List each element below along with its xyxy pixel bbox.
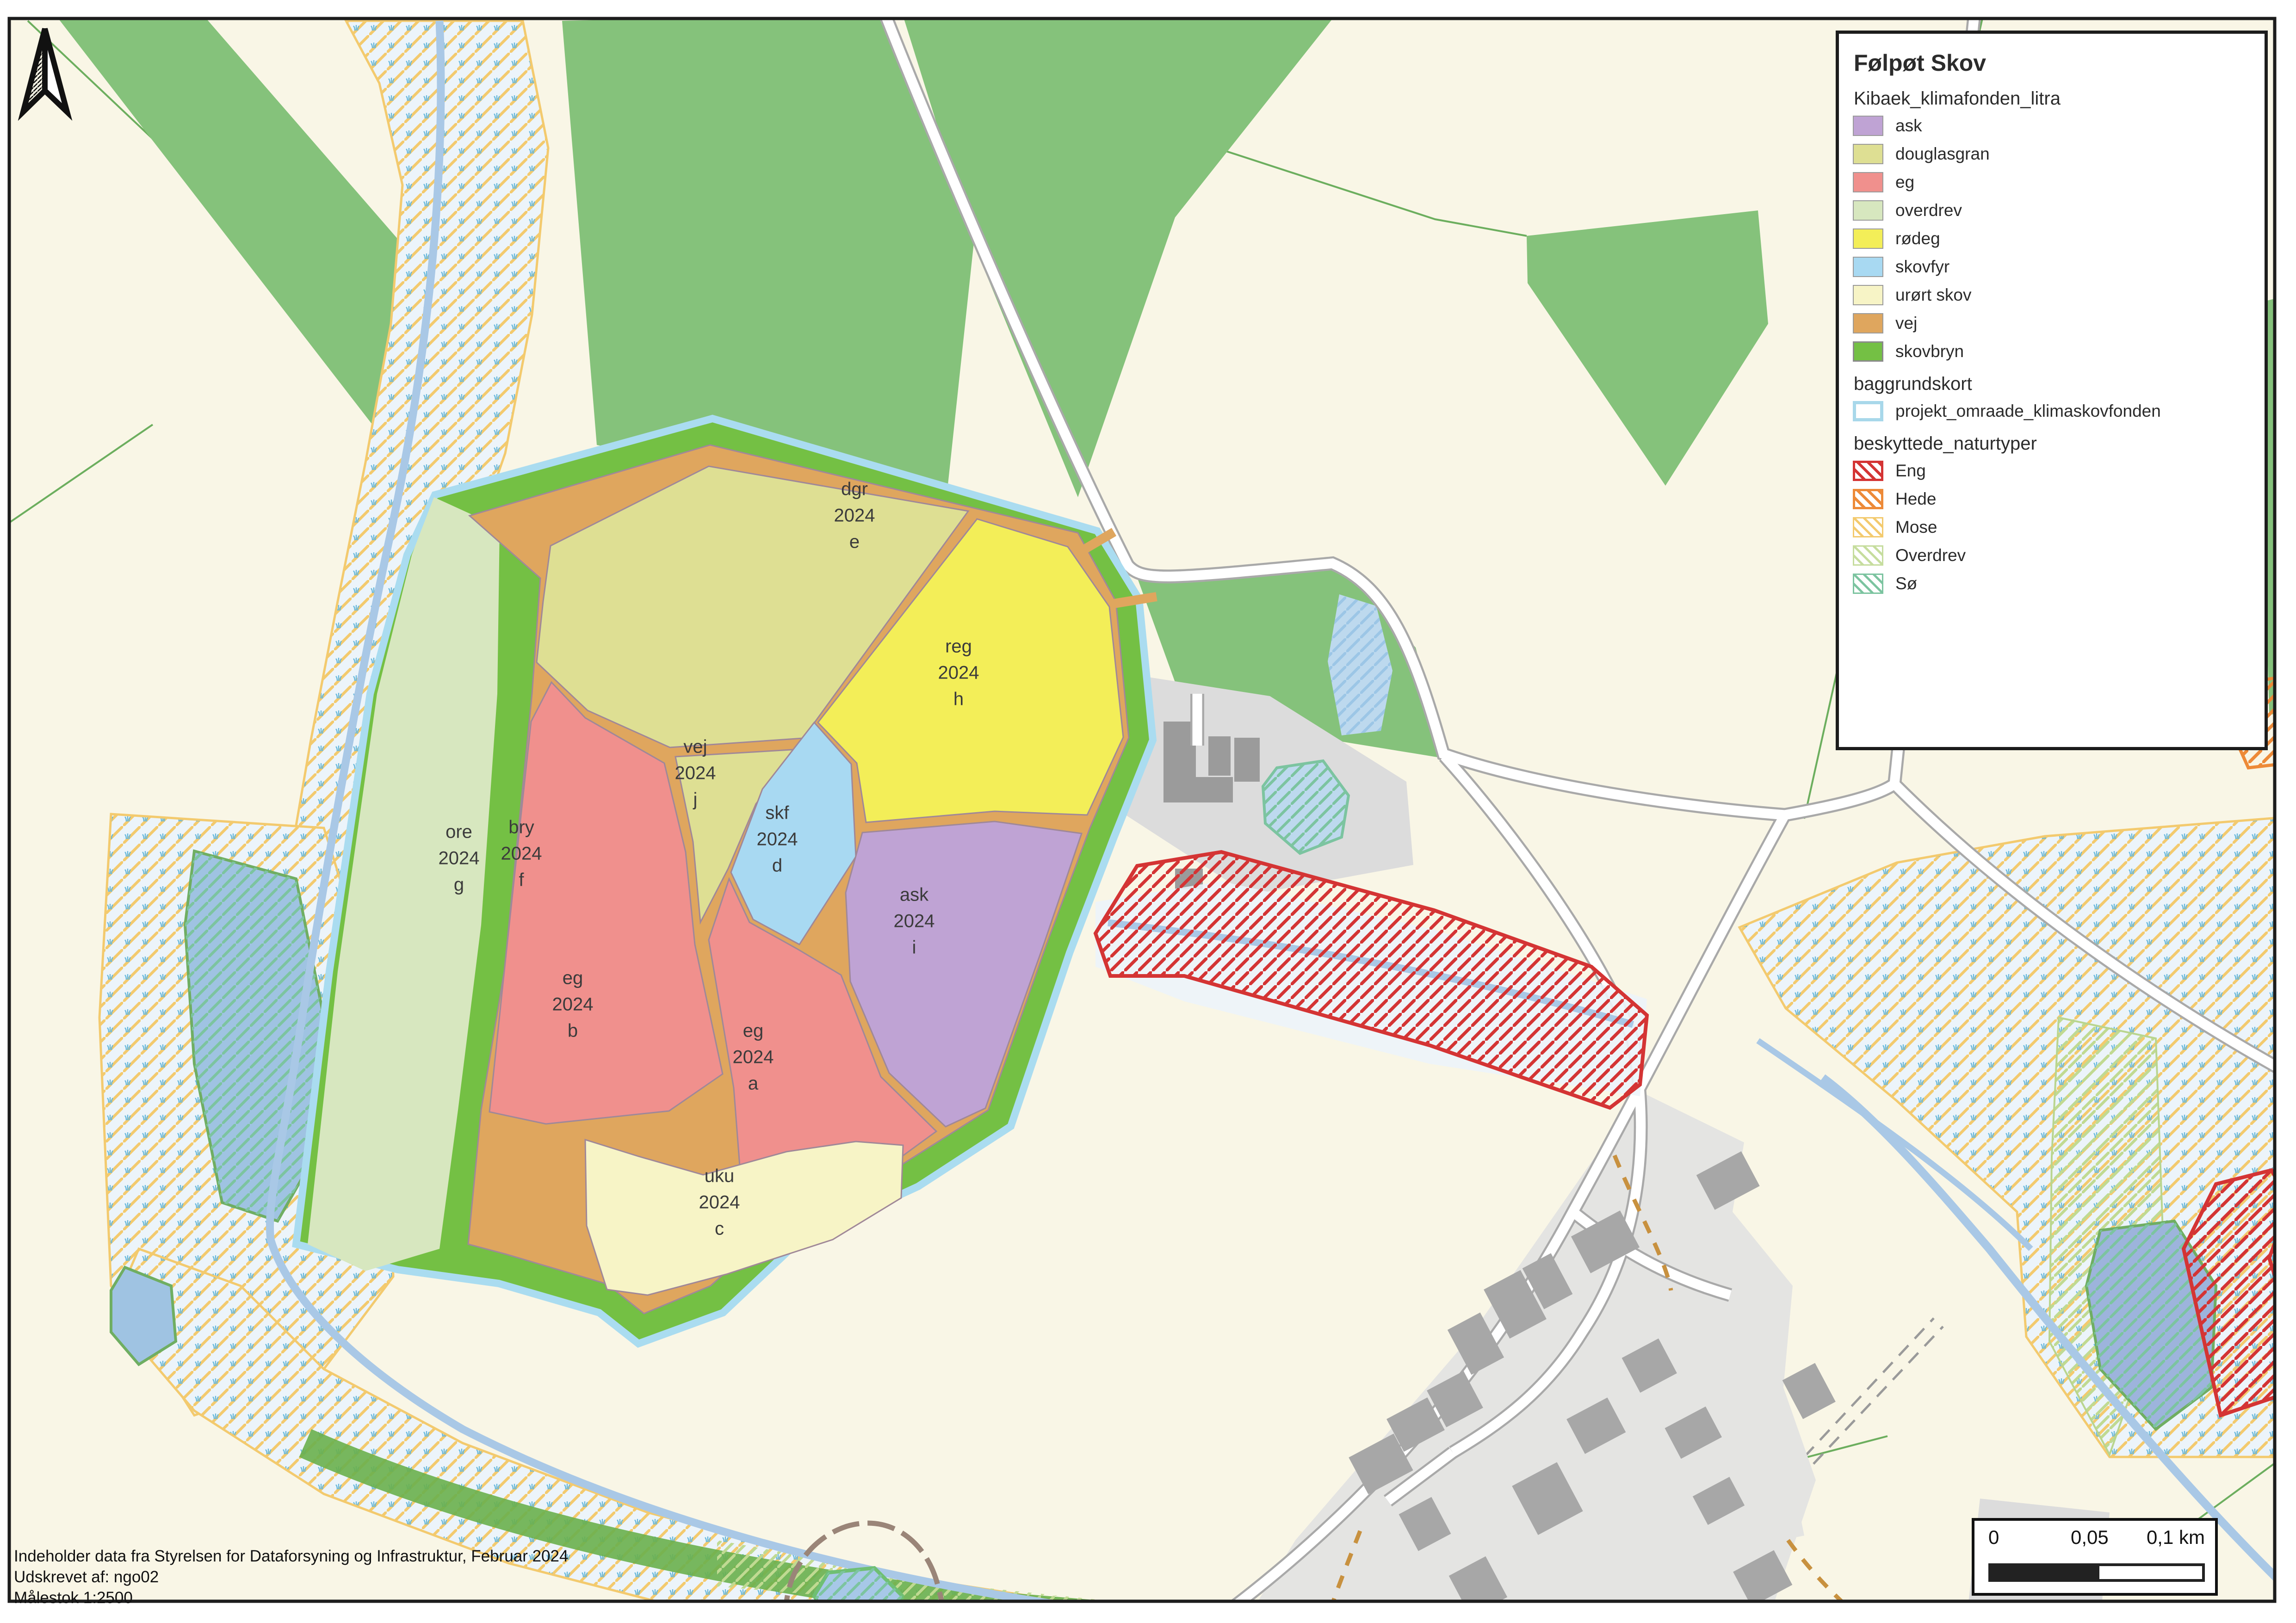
legend-item: Eng	[1853, 461, 2251, 481]
legend-items: projekt_omraade_klimaskovfonden	[1853, 401, 2251, 421]
attribution-line-source: Indeholder data fra Styrelsen for Datafo…	[14, 1546, 568, 1567]
legend-item: ask	[1853, 116, 2251, 136]
legend-item-label: skovbryn	[1895, 342, 1964, 361]
scalebar-label-end: 0,1 km	[2147, 1526, 2205, 1549]
legend-swatch	[1853, 116, 1883, 136]
legend-item: eg	[1853, 172, 2251, 192]
legend-swatch	[1853, 489, 1883, 509]
legend-item-label: skovfyr	[1895, 257, 1949, 277]
legend-item-label: rødeg	[1895, 229, 1940, 248]
legend-item: skovbryn	[1853, 341, 2251, 362]
legend-panel: Følpøt Skov Kibaek_klimafonden_litra ask…	[1836, 31, 2268, 750]
legend-item-label: projekt_omraade_klimaskovfonden	[1895, 401, 2161, 421]
legend-swatch	[1853, 144, 1883, 164]
scalebar-label-start: 0	[1988, 1526, 1999, 1549]
legend-item: Mose	[1853, 517, 2251, 537]
legend-swatch	[1853, 285, 1883, 305]
legend-items: ask douglasgran eg overdrev rødeg skovfy…	[1853, 116, 2251, 362]
legend-item-label: Overdrev	[1895, 546, 1966, 565]
legend-item: Hede	[1853, 489, 2251, 509]
legend-item: Sø	[1853, 574, 2251, 594]
legend-item-label: Sø	[1895, 574, 1917, 593]
legend-swatch	[1853, 200, 1883, 221]
legend-swatch	[1853, 574, 1883, 594]
legend-group: beskyttede_naturtyper Eng Hede Mose Over…	[1853, 433, 2251, 594]
legend-swatch	[1853, 401, 1883, 421]
legend-swatch	[1853, 228, 1883, 249]
legend-item: projekt_omraade_klimaskovfonden	[1853, 401, 2251, 421]
legend-group-name: Kibaek_klimafonden_litra	[1854, 88, 2251, 109]
scalebar: 0 0,05 0,1 km	[1972, 1518, 2218, 1596]
legend-item: skovfyr	[1853, 257, 2251, 277]
legend-item-label: vej	[1895, 314, 1917, 333]
legend-items: Eng Hede Mose Overdrev Sø	[1853, 461, 2251, 594]
legend-item: urørt skov	[1853, 285, 2251, 305]
legend-swatch	[1853, 172, 1883, 192]
legend-item: vej	[1853, 313, 2251, 333]
legend-item: overdrev	[1853, 200, 2251, 221]
legend-swatch	[1853, 517, 1883, 537]
legend-item-label: ask	[1895, 116, 1922, 136]
legend-groups: Kibaek_klimafonden_litra ask douglasgran…	[1853, 88, 2251, 594]
legend-group-name: baggrundskort	[1854, 374, 2251, 395]
legend-swatch	[1853, 545, 1883, 566]
legend-swatch	[1853, 341, 1883, 362]
legend-group: Kibaek_klimafonden_litra ask douglasgran…	[1853, 88, 2251, 362]
scalebar-segment-filled	[1988, 1563, 2097, 1582]
legend-swatch	[1853, 461, 1883, 481]
legend-item-label: Mose	[1895, 518, 1937, 537]
legend-group-name: beskyttede_naturtyper	[1854, 433, 2251, 454]
legend-item-label: Eng	[1895, 461, 1926, 481]
legend-item-label: urørt skov	[1895, 285, 1971, 305]
legend-group: baggrundskort projekt_omraade_klimaskovf…	[1853, 374, 2251, 421]
legend-item: Overdrev	[1853, 545, 2251, 566]
legend-item-label: overdrev	[1895, 201, 1962, 220]
legend-swatch	[1853, 313, 1883, 333]
attribution-line-scale: Målestok 1:2500	[14, 1587, 568, 1608]
legend-item: douglasgran	[1853, 144, 2251, 164]
legend-item-label: eg	[1895, 173, 1914, 192]
scalebar-label-mid: 0,05	[2071, 1526, 2109, 1549]
legend-swatch	[1853, 257, 1883, 277]
legend-item-label: Hede	[1895, 489, 1936, 509]
legend-title: Følpøt Skov	[1854, 49, 2251, 76]
attribution: Indeholder data fra Styrelsen for Datafo…	[14, 1546, 568, 1608]
attribution-line-user: Udskrevet af: ngo02	[14, 1567, 568, 1587]
legend-item-label: douglasgran	[1895, 144, 1990, 164]
scalebar-segment-empty	[2097, 1563, 2205, 1582]
legend-item: rødeg	[1853, 228, 2251, 249]
